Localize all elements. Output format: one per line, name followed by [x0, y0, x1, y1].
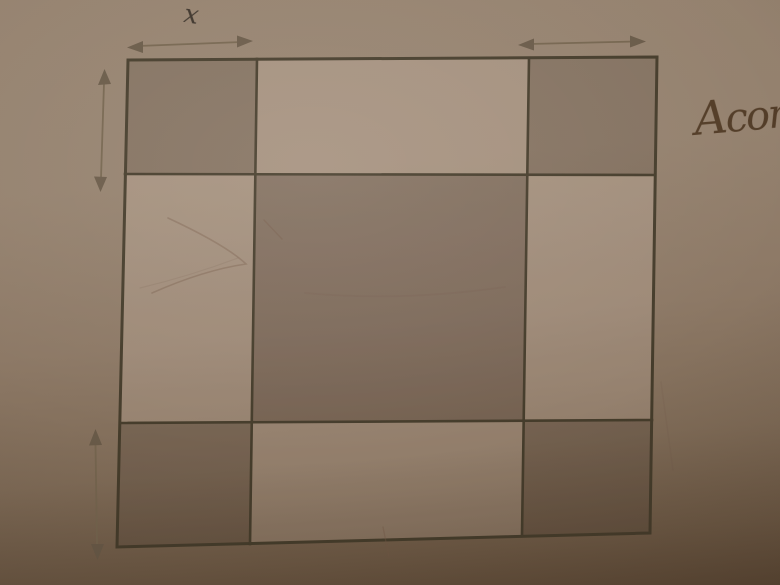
- cell-bottom-left-shaded: [117, 422, 252, 547]
- cell-top-left-shaded: [125, 59, 257, 174]
- top-right-width-arrow: [518, 36, 646, 51]
- arrow-line: [96, 444, 98, 545]
- arrow-head-left-icon: [127, 41, 143, 53]
- cell-center-shaded: [252, 174, 527, 422]
- cell-top-middle-light: [255, 58, 529, 175]
- cell-middle-right-light: [524, 175, 655, 421]
- square-grid-diagram: [0, 0, 780, 585]
- left-height-upper-arrow: [94, 69, 111, 192]
- arrow-line: [138, 42, 242, 46]
- photo-of-worksheet: x Acor: [0, 0, 780, 585]
- arrow-line: [529, 42, 635, 45]
- top-left-width-arrow: [127, 36, 253, 54]
- arrow-head-up-icon: [89, 429, 102, 446]
- arrow-head-left-icon: [518, 39, 534, 51]
- left-height-lower-arrow: [89, 429, 104, 560]
- arrow-head-down-icon: [94, 177, 107, 193]
- arrow-head-down-icon: [91, 544, 104, 560]
- handwritten-annotation: Acor: [692, 84, 780, 146]
- cell-top-right-shaded: [527, 57, 657, 175]
- arrow-head-up-icon: [98, 69, 111, 85]
- arrow-head-right-icon: [237, 36, 253, 48]
- cell-bottom-right-shaded: [522, 420, 652, 536]
- cell-middle-left-light: [120, 174, 255, 423]
- horizontal-grid-line-1: [125, 174, 655, 175]
- cell-bottom-middle-light: [250, 421, 524, 544]
- arrow-head-right-icon: [630, 36, 646, 48]
- arrow-line: [101, 83, 104, 178]
- paper-crease-line: [661, 382, 673, 470]
- grid-cells: [117, 57, 657, 547]
